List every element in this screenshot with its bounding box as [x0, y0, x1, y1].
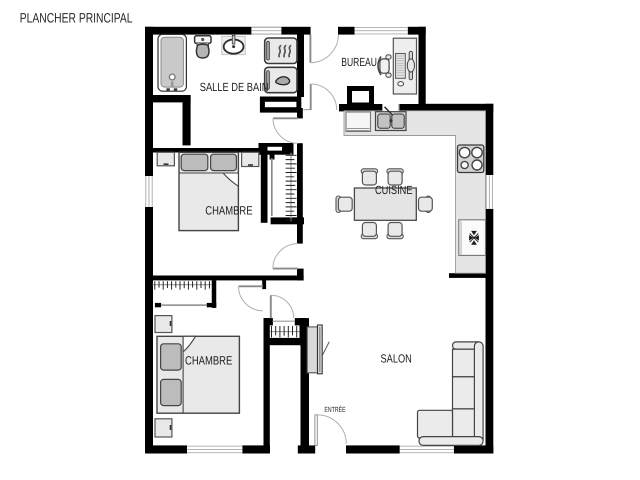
svg-text:CHAMBRE: CHAMBRE [185, 353, 232, 367]
svg-text:SALON: SALON [381, 352, 412, 366]
svg-text:PLANCHER PRINCIPAL: PLANCHER PRINCIPAL [20, 11, 133, 26]
svg-text:CHAMBRE: CHAMBRE [205, 203, 252, 217]
svg-text:SALLE DE BAIN: SALLE DE BAIN [200, 80, 269, 94]
svg-text:ENTRÉE: ENTRÉE [324, 405, 345, 414]
svg-text:CUISINE: CUISINE [375, 183, 413, 197]
svg-text:BUREAU: BUREAU [341, 55, 377, 69]
